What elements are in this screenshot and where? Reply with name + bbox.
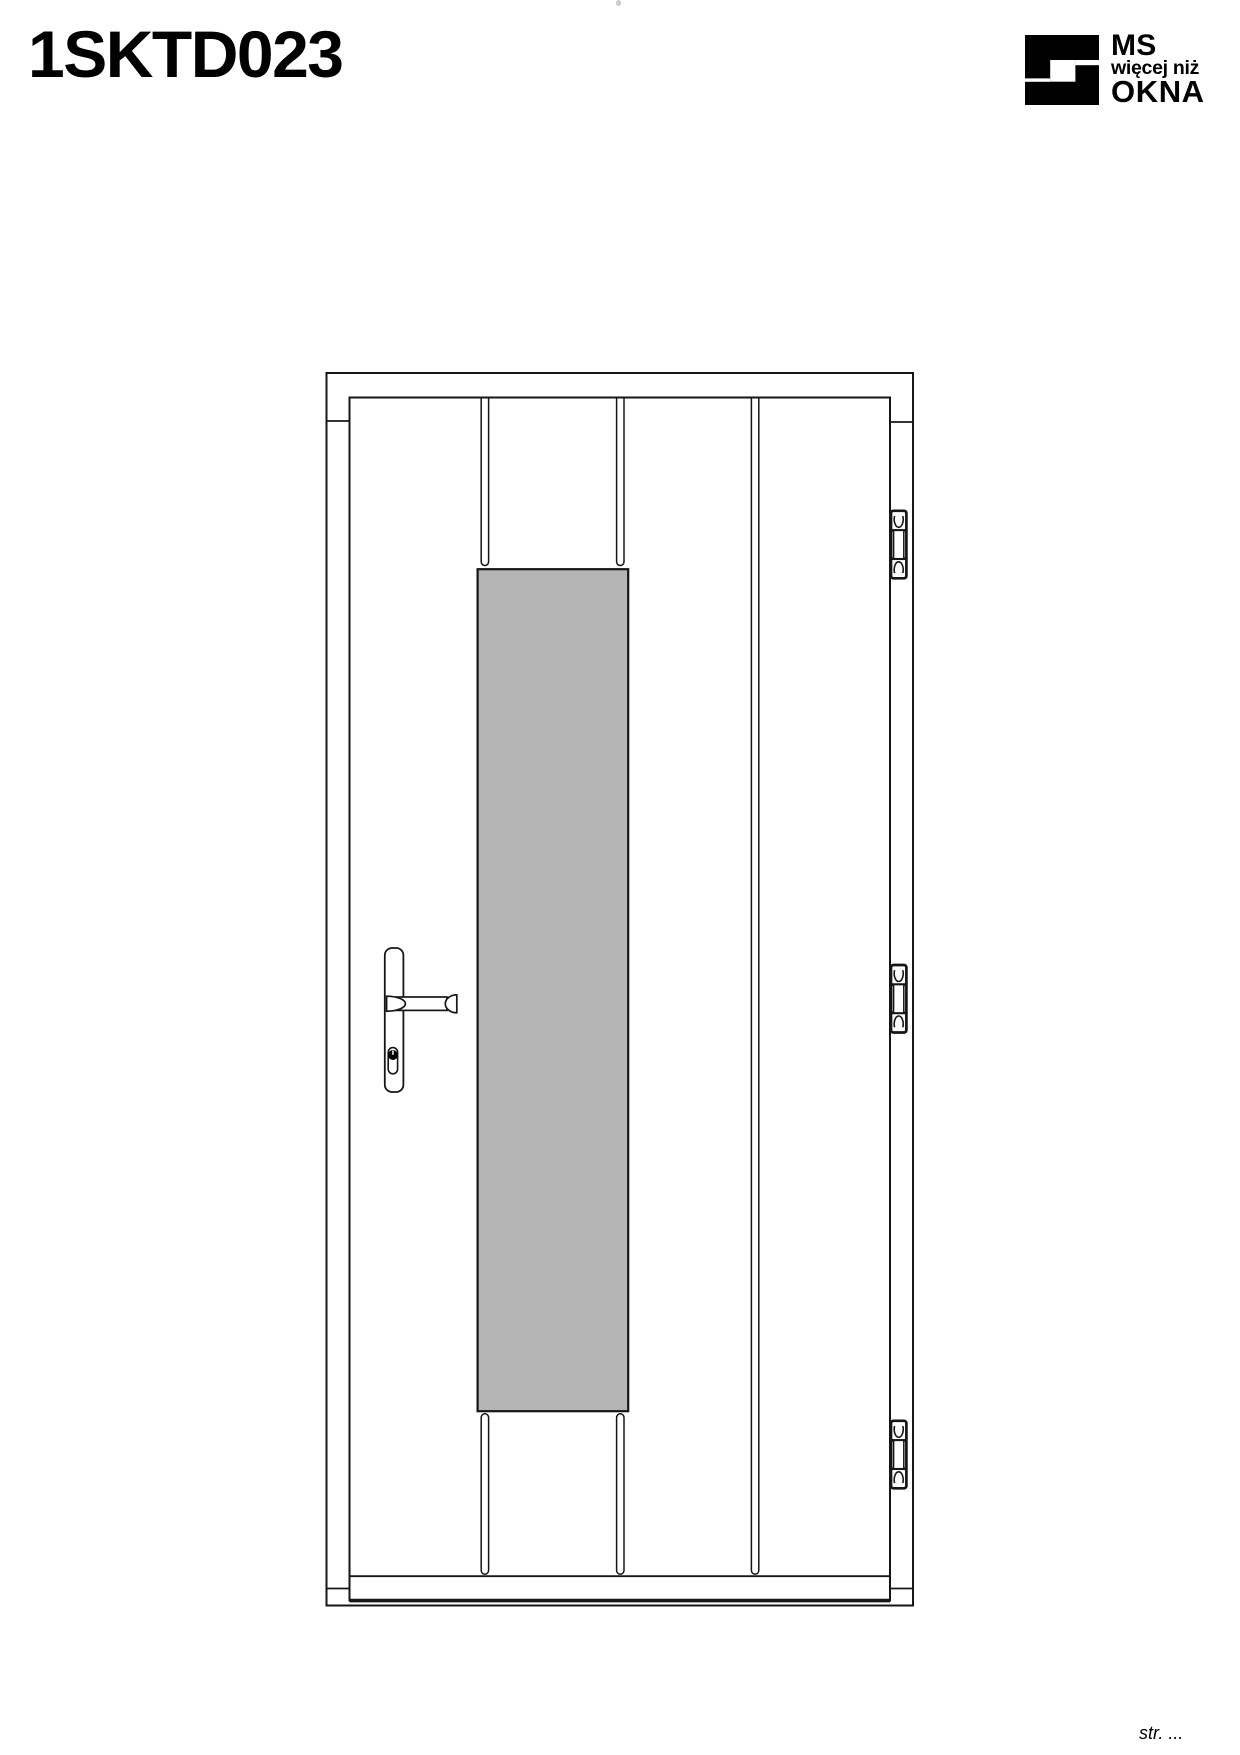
glass-panel [478,569,629,1411]
catalog-page: 1SKTD023 MS więcej niż OKNA [0,0,1240,1755]
hinge-top [891,511,906,579]
groove-1-lower [481,1414,488,1574]
hinge-middle [891,965,906,1033]
groove-1-upper [481,398,488,566]
groove-3-full [751,398,758,1575]
lock-cylinder [388,1048,398,1074]
page-number-label: str. ... [1139,1723,1183,1745]
hinge-bottom [891,1421,906,1489]
groove-2-lower [617,1414,624,1574]
door-elevation-drawing [0,0,1240,1755]
door-handle [385,948,457,1092]
groove-2-upper [617,398,624,566]
